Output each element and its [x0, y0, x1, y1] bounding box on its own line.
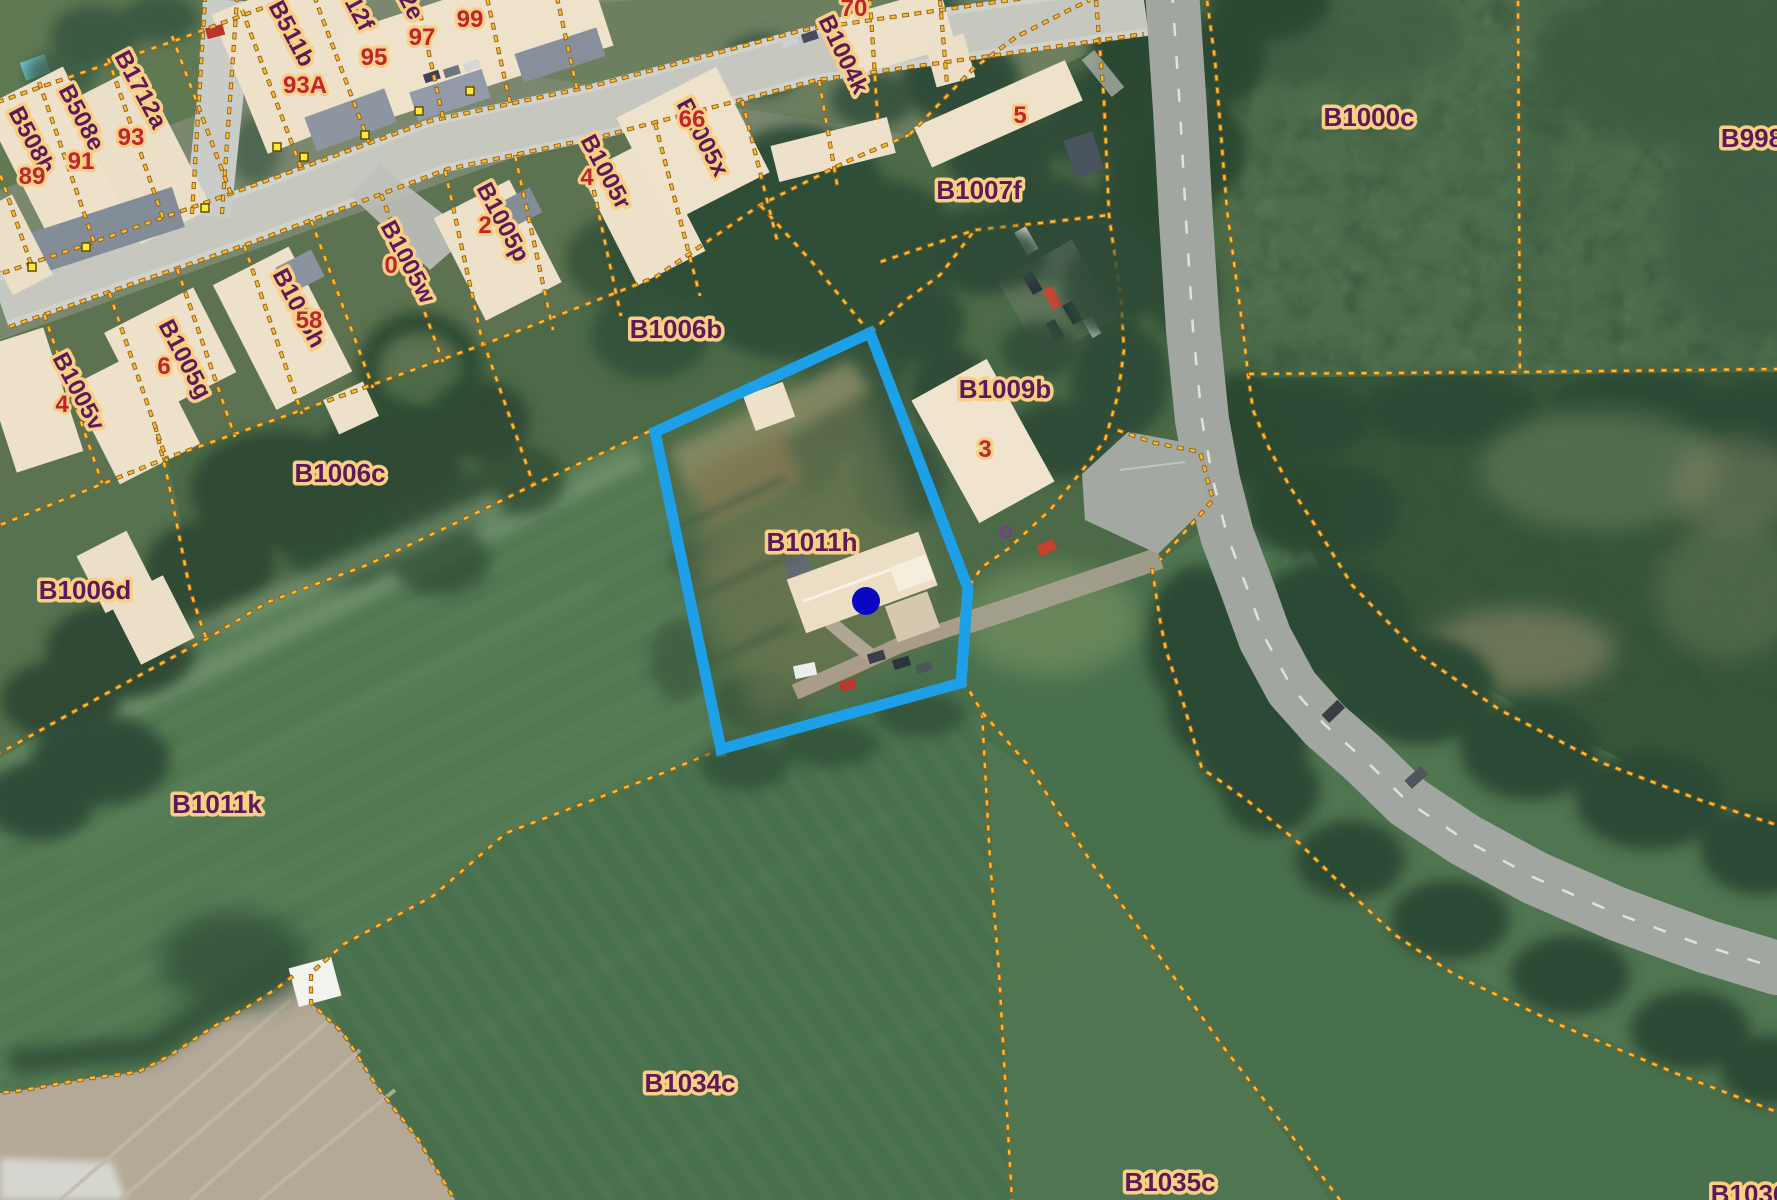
svg-text:4: 4 — [55, 391, 69, 418]
svg-text:B1006c: B1006c — [294, 458, 385, 488]
svg-text:70: 70 — [841, 0, 868, 22]
svg-text:B1000c: B1000c — [1323, 102, 1414, 132]
svg-text:91: 91 — [68, 148, 95, 175]
svg-text:99: 99 — [457, 6, 484, 33]
svg-text:3: 3 — [978, 436, 991, 463]
svg-text:93: 93 — [118, 124, 145, 151]
svg-text:6: 6 — [157, 353, 170, 380]
svg-text:B1006b: B1006b — [630, 314, 723, 344]
svg-text:58: 58 — [296, 307, 323, 334]
svg-text:2: 2 — [478, 212, 491, 239]
svg-text:B1035c: B1035c — [1124, 1167, 1215, 1197]
svg-text:B1006d: B1006d — [39, 575, 132, 605]
svg-text:5: 5 — [1013, 102, 1026, 129]
svg-text:B1011k: B1011k — [172, 789, 262, 819]
svg-text:B998: B998 — [1721, 123, 1777, 153]
svg-text:4: 4 — [580, 164, 594, 191]
svg-text:B1036d: B1036d — [1711, 1179, 1777, 1200]
svg-text:66: 66 — [679, 106, 706, 133]
svg-text:89: 89 — [19, 163, 46, 190]
svg-text:B1007f: B1007f — [936, 175, 1022, 205]
svg-text:B1011h: B1011h — [766, 527, 857, 557]
svg-text:93A: 93A — [283, 72, 327, 99]
svg-text:95: 95 — [361, 44, 388, 71]
svg-text:B1009b: B1009b — [959, 374, 1052, 404]
svg-text:97: 97 — [409, 24, 436, 51]
svg-text:0: 0 — [384, 252, 397, 279]
svg-text:B1034c: B1034c — [644, 1068, 735, 1098]
